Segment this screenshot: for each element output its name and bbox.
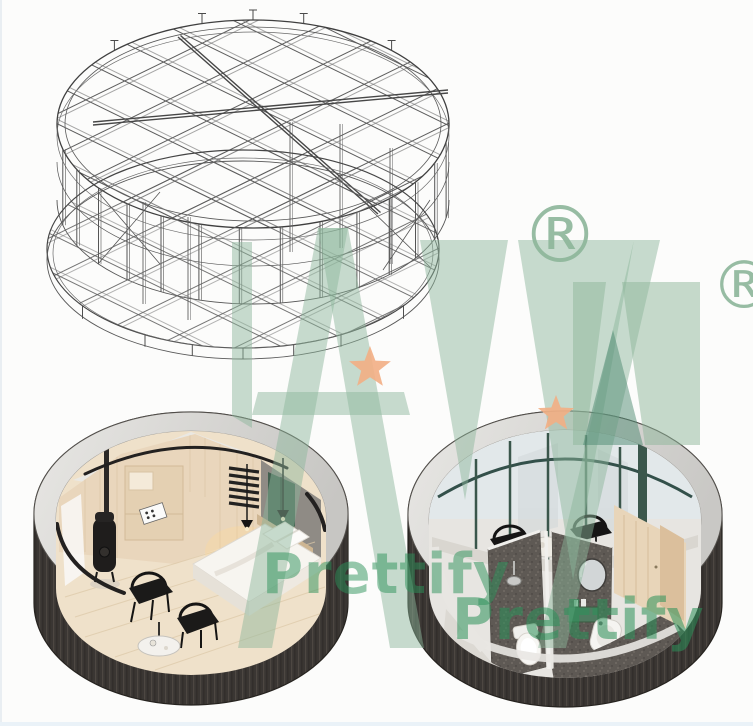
capsule-house-product-image: ® ® Prettify Prettify xyxy=(0,0,753,726)
bedroom-pod xyxy=(25,402,357,710)
registered-symbol-1: ® xyxy=(521,191,599,281)
registered-symbol-2: ® xyxy=(711,247,753,324)
bathroom-pod xyxy=(398,397,732,712)
mirror xyxy=(578,559,606,591)
kitchenette xyxy=(125,466,183,540)
steel-frame-wireframe xyxy=(38,2,468,360)
floor-grid xyxy=(47,150,439,359)
curtain xyxy=(61,494,85,586)
